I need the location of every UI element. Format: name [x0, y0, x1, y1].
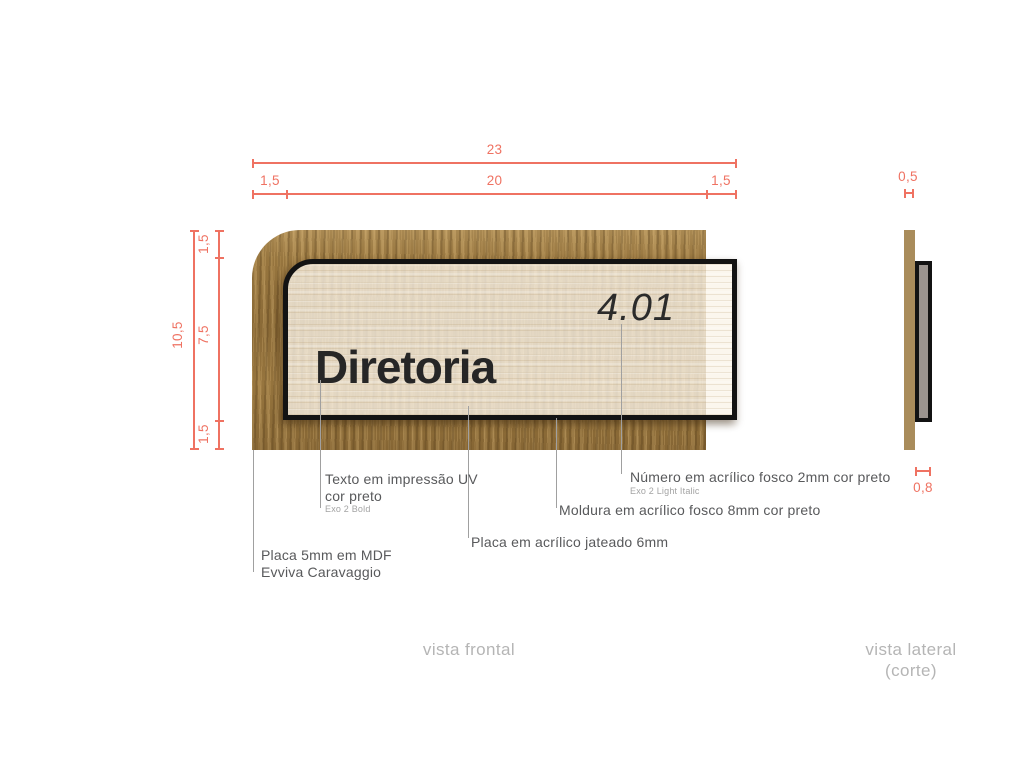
callout-acrylic-plate: Placa em acrílico jateado 6mm [471, 534, 668, 551]
sign-room-name: Diretoria [315, 340, 495, 394]
callout-mdf-plate-line2: Evviva Caravaggio [261, 564, 392, 581]
leader-line-frame [556, 418, 557, 508]
callout-frame-line1: Moldura em acrílico fosco 8mm cor preto [559, 502, 820, 519]
callout-number-font: Exo 2 Light Italic [630, 486, 890, 496]
side-view-label-line1: vista lateral [855, 639, 967, 660]
dim-top-right-segment [706, 193, 737, 195]
callout-number-line1: Número em acrílico fosco 2mm cor preto [630, 469, 890, 486]
dim-side-bottom-label: 0,8 [903, 481, 943, 495]
leader-line-uv-text [320, 380, 321, 508]
side-view-label-line2: (corte) [855, 660, 967, 681]
callout-uv-text-font: Exo 2 Bold [325, 504, 478, 514]
callout-uv-text-line2: cor preto [325, 488, 478, 505]
callout-uv-text: Texto em impressão UV cor preto Exo 2 Bo… [325, 471, 478, 514]
dim-side-top-label: 0,5 [888, 170, 928, 184]
dim-top-right-label: 1,5 [691, 174, 751, 188]
dim-left-middle-segment [218, 259, 220, 420]
callout-mdf-plate-line1: Placa 5mm em MDF [261, 547, 392, 564]
dim-top-total-label: 23 [252, 143, 737, 157]
dim-top-center-label: 20 [252, 174, 737, 188]
dim-left-bottom-segment [218, 420, 220, 450]
leader-line-number [621, 324, 622, 474]
front-view-label: vista frontal [389, 639, 549, 660]
leader-line-mdf [253, 450, 254, 572]
spec-sheet: 23 1,5 20 1,5 10,5 1,5 7,5 1,5 Diretoria… [0, 0, 1016, 768]
callout-mdf-plate: Placa 5mm em MDF Evviva Caravaggio [261, 547, 392, 580]
callout-uv-text-line1: Texto em impressão UV [325, 471, 478, 488]
dim-left-top-label: 1,5 [197, 227, 211, 261]
callout-number: Número em acrílico fosco 2mm cor preto E… [630, 469, 890, 496]
side-view-acrylic-bar [915, 261, 932, 422]
dim-left-total-label: 10,5 [171, 315, 185, 355]
sign-room-number: 4.01 [565, 287, 675, 330]
side-view-label: vista lateral (corte) [855, 639, 967, 681]
dim-left-middle-label: 7,5 [197, 318, 211, 352]
dim-left-bottom-label: 1,5 [197, 417, 211, 451]
dim-left-top-segment [218, 230, 220, 259]
side-view-mdf-bar [904, 230, 915, 450]
callout-frame: Moldura em acrílico fosco 8mm cor preto [559, 502, 820, 519]
callout-acrylic-plate-line1: Placa em acrílico jateado 6mm [471, 534, 668, 551]
dim-top-left-segment [252, 193, 288, 195]
dim-side-bottom-bracket [915, 470, 931, 472]
dim-left-total-line [193, 230, 195, 450]
dim-top-center-segment [288, 193, 706, 195]
dim-side-top-bracket [904, 192, 914, 194]
dim-top-total-line [252, 162, 737, 164]
